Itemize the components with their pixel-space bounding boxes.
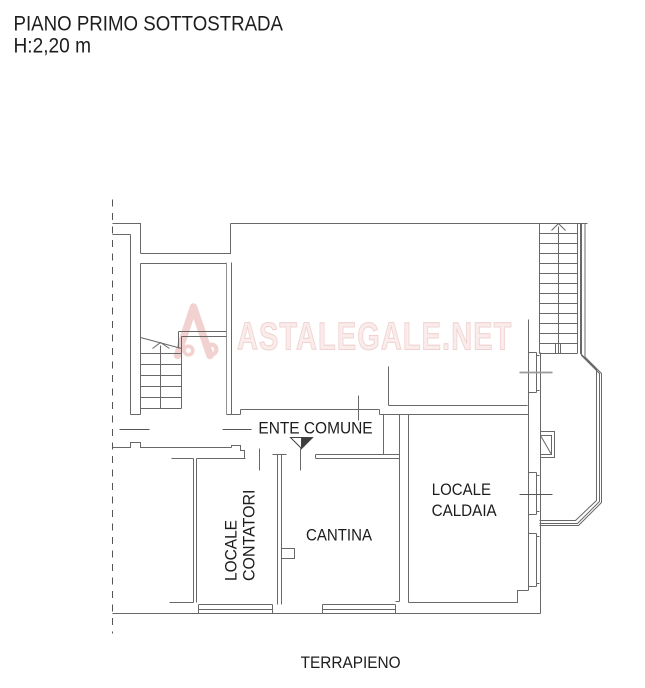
- svg-text:LOCALE: LOCALE: [223, 520, 241, 581]
- svg-text:ASTALEGALE.NET: ASTALEGALE.NET: [237, 315, 512, 358]
- svg-text:TERRAPIENO: TERRAPIENO: [301, 653, 401, 672]
- svg-text:PIANO PRIMO SOTTOSTRADA: PIANO PRIMO SOTTOSTRADA: [14, 13, 284, 36]
- svg-text:H:2,20 m: H:2,20 m: [14, 34, 92, 57]
- svg-text:ENTE COMUNE: ENTE COMUNE: [258, 420, 372, 438]
- svg-text:CONTATORI: CONTATORI: [240, 490, 258, 582]
- svg-text:CANTINA: CANTINA: [306, 526, 373, 545]
- svg-text:LOCALE: LOCALE: [432, 480, 491, 499]
- svg-text:CALDAIA: CALDAIA: [432, 501, 498, 520]
